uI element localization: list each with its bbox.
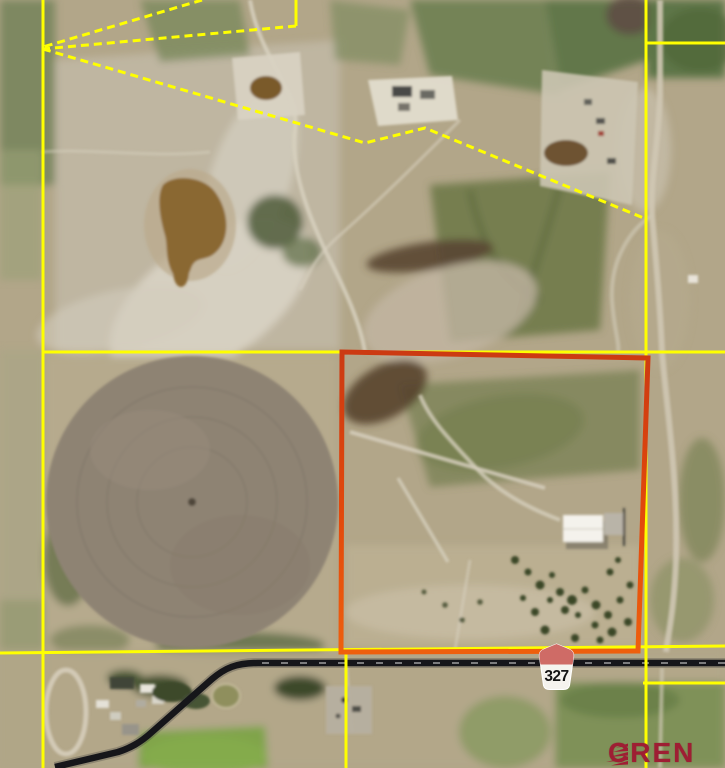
parcel-boundary-overlay	[0, 0, 725, 768]
route-shield-icon: 327	[535, 642, 578, 692]
route-number: 327	[544, 668, 568, 685]
highway-327-shield: 327	[535, 642, 578, 692]
aerial-map: 327 CREN	[0, 0, 725, 768]
highlighted-parcel-outline	[341, 352, 648, 652]
cren-watermark: CREN	[604, 740, 695, 768]
cren-logo-icon	[604, 743, 630, 767]
